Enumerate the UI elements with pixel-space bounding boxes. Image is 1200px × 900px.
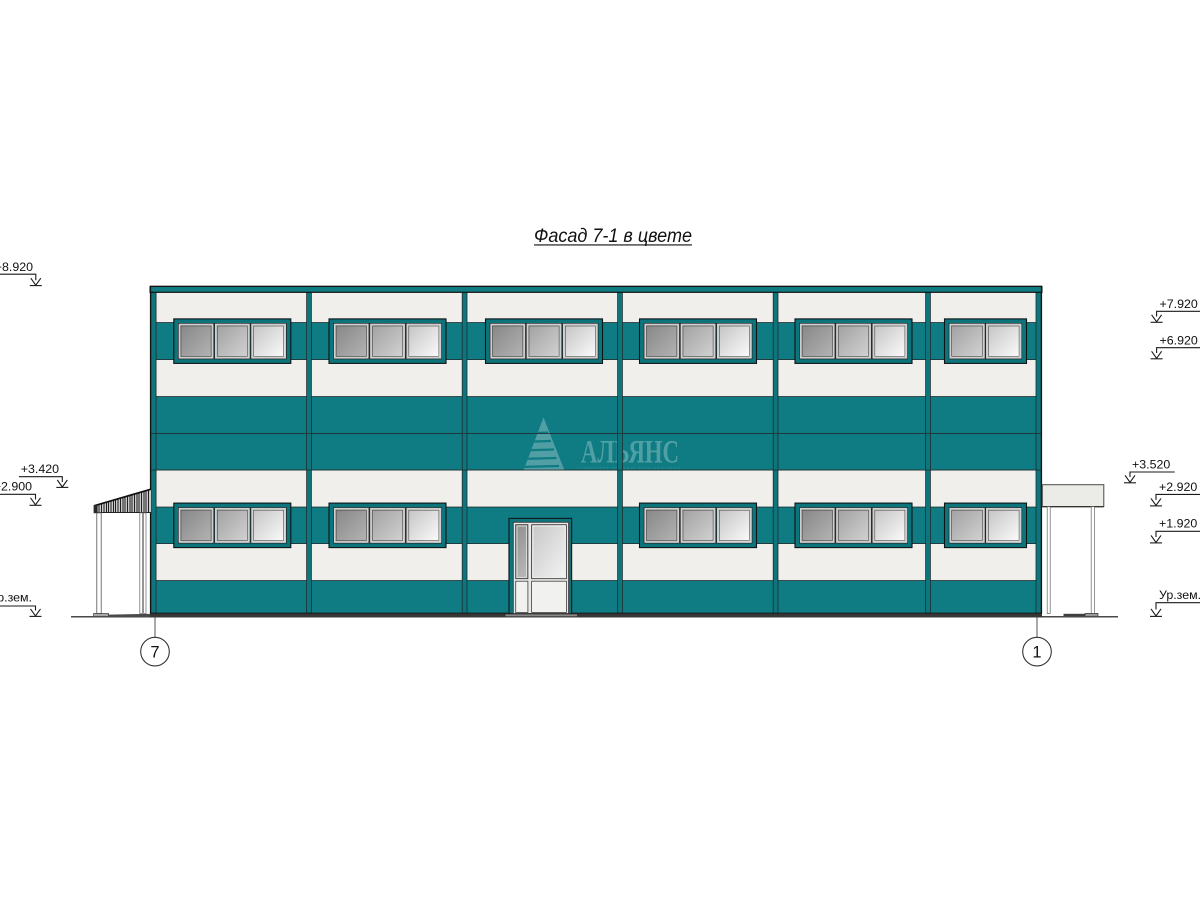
- svg-text:+8.920: +8.920: [0, 260, 33, 274]
- svg-text:Фасад 7-1 в цвете: Фасад 7-1 в цвете: [534, 226, 692, 247]
- svg-text:+2.900: +2.900: [0, 480, 32, 494]
- svg-text:+3.520: +3.520: [1132, 458, 1170, 472]
- svg-text:+1.920: +1.920: [1159, 517, 1197, 531]
- svg-text:+7.920: +7.920: [1160, 297, 1198, 311]
- svg-text:+2.920: +2.920: [1159, 480, 1197, 494]
- svg-text:1: 1: [1032, 643, 1041, 661]
- svg-text:+3.420: +3.420: [21, 462, 59, 476]
- svg-text:+6.920: +6.920: [1160, 333, 1198, 347]
- svg-text:7: 7: [150, 643, 159, 661]
- svg-text:Ур.зем.: Ур.зем.: [0, 590, 32, 604]
- svg-text:Ур.зем.: Ур.зем.: [1159, 588, 1200, 602]
